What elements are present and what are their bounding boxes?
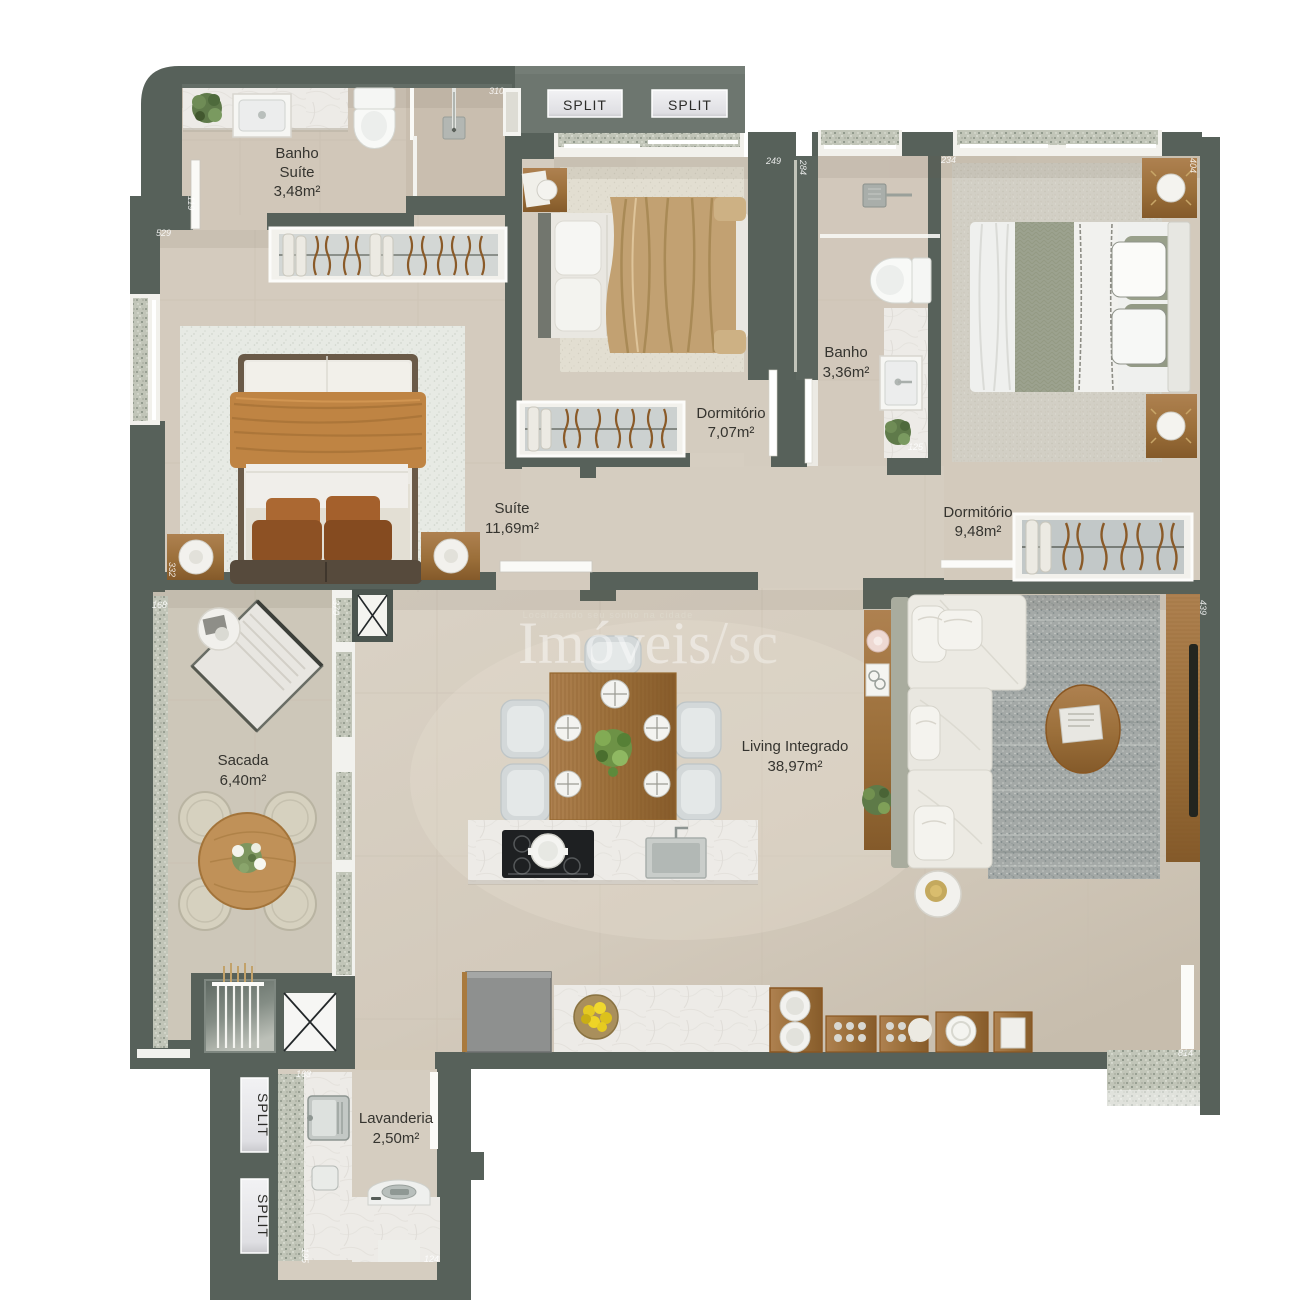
svg-text:Living Integrado: Living Integrado <box>742 738 849 755</box>
svg-text:284: 284 <box>798 159 808 175</box>
svg-text:Banho: Banho <box>824 344 867 361</box>
svg-text:Banho: Banho <box>275 145 318 162</box>
svg-text:119: 119 <box>186 196 196 210</box>
svg-text:814: 814 <box>1178 1048 1193 1058</box>
svg-text:Sacada: Sacada <box>218 752 270 769</box>
svg-text:234: 234 <box>940 155 956 165</box>
svg-text:38,97m²: 38,97m² <box>767 758 822 775</box>
svg-text:2,50m²: 2,50m² <box>373 1130 420 1147</box>
svg-text:Dormitório: Dormitório <box>696 405 765 422</box>
svg-text:SPLIT: SPLIT <box>255 1194 271 1238</box>
svg-text:124: 124 <box>424 1254 439 1264</box>
svg-text:Suíte: Suíte <box>494 500 529 517</box>
svg-text:168: 168 <box>152 600 167 610</box>
svg-text:SPLIT: SPLIT <box>563 97 607 113</box>
svg-text:3,48m²: 3,48m² <box>274 183 321 200</box>
svg-text:Suíte: Suíte <box>279 164 314 181</box>
svg-text:Dormitório: Dormitório <box>943 504 1012 521</box>
svg-text:Lavanderia: Lavanderia <box>359 1110 434 1127</box>
svg-text:195: 195 <box>300 1248 310 1264</box>
svg-text:SPLIT: SPLIT <box>668 97 712 113</box>
svg-text:6,40m²: 6,40m² <box>220 772 267 789</box>
svg-text:Imóveis/sc: Imóveis/sc <box>518 610 778 676</box>
svg-text:404: 404 <box>1188 158 1198 173</box>
svg-text:310: 310 <box>489 86 504 96</box>
svg-text:11,69m²: 11,69m² <box>485 520 539 537</box>
svg-text:125: 125 <box>908 442 924 452</box>
svg-text:370: 370 <box>331 600 341 615</box>
svg-text:3,36m²: 3,36m² <box>823 364 870 381</box>
svg-text:7,07m²: 7,07m² <box>708 424 755 441</box>
svg-text:249: 249 <box>765 156 781 166</box>
svg-text:529: 529 <box>156 228 171 238</box>
svg-text:SPLIT: SPLIT <box>255 1093 271 1137</box>
svg-text:439: 439 <box>1198 600 1208 615</box>
svg-text:9,48m²: 9,48m² <box>955 523 1002 540</box>
svg-text:332: 332 <box>167 562 177 577</box>
svg-text:163: 163 <box>296 1069 311 1079</box>
